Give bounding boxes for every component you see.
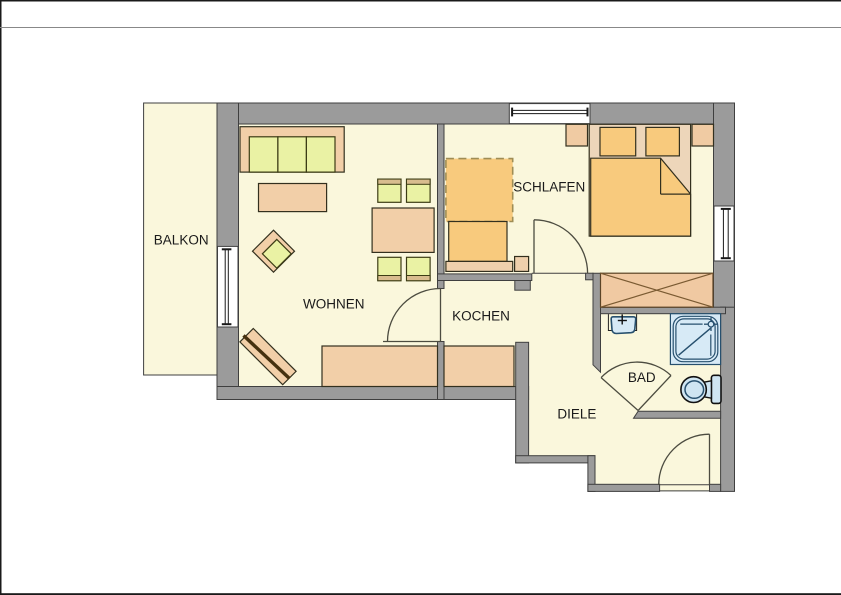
svg-text:SCHLAFEN: SCHLAFEN xyxy=(513,180,585,195)
svg-text:WOHNEN: WOHNEN xyxy=(303,297,365,312)
svg-text:BAD: BAD xyxy=(628,370,656,385)
svg-text:DIELE: DIELE xyxy=(557,407,596,422)
svg-text:KOCHEN: KOCHEN xyxy=(452,308,510,323)
svg-text:BALKON: BALKON xyxy=(154,233,209,248)
